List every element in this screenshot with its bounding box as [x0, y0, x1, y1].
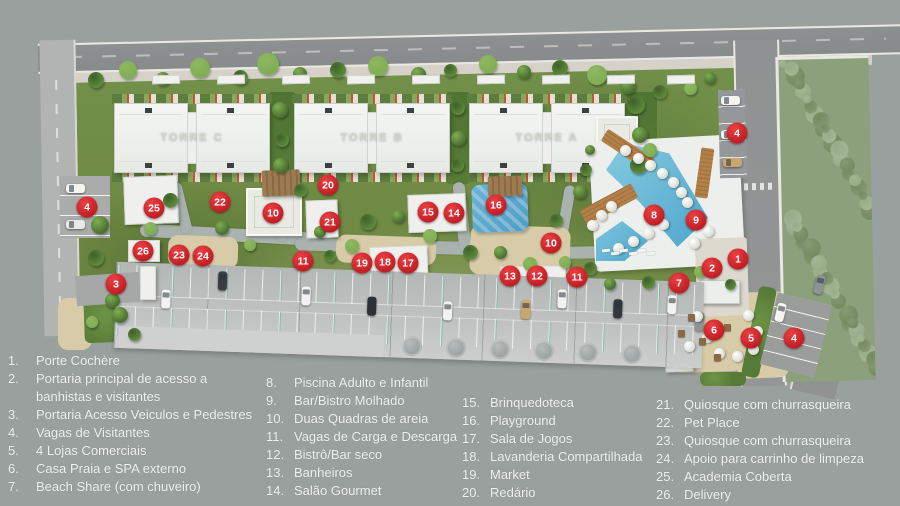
hedge-strip: [700, 372, 746, 386]
map-marker-7: 7: [669, 273, 690, 294]
legend-item: 9.Bar/Bistro Molhado: [266, 392, 476, 410]
tree: [642, 276, 655, 289]
map-marker-14: 14: [444, 203, 465, 224]
legend-item-number: 15.: [462, 394, 490, 412]
legend-item-number: 2.: [8, 370, 36, 406]
map-marker-11: 11: [567, 267, 588, 288]
tree: [112, 307, 128, 323]
legend-item-text: Lavanderia Compartilhada: [490, 448, 662, 466]
map-marker-8: 8: [644, 205, 665, 226]
tree: [643, 143, 657, 157]
legend-item-number: 10.: [266, 410, 294, 428]
pool-umbrella: [668, 177, 679, 188]
car: [521, 300, 531, 319]
legend-item-text: Market: [490, 466, 662, 484]
legend-item: 20.Redário: [462, 484, 662, 502]
legend-item-text: Porte Cochère: [36, 352, 266, 370]
legend-item-text: Quiosque com churrasqueira: [684, 432, 896, 450]
legend-item-number: 13.: [266, 464, 294, 482]
legend-item-text: Playground: [490, 412, 662, 430]
tree: [580, 164, 592, 176]
pool-umbrella: [620, 145, 631, 156]
map-marker-10: 10: [263, 203, 284, 224]
pool-umbrella: [684, 341, 695, 352]
tree: [275, 133, 289, 147]
map-marker-11: 11: [293, 251, 314, 272]
planter-box: [217, 75, 245, 85]
legend-item-text: 4 Lojas Comerciais: [36, 442, 266, 460]
tree: [423, 229, 437, 243]
car: [721, 96, 740, 105]
legend-item-text: Vagas de Carga e Descarga: [294, 428, 476, 446]
tree: [704, 72, 716, 84]
legend-item-text: Casa Praia e SPA externo: [36, 460, 266, 478]
legend-item-text: Salão Gourmet: [294, 482, 476, 500]
tree: [119, 61, 137, 79]
legend-item-number: 12.: [266, 446, 294, 464]
tree: [451, 101, 465, 115]
map-marker-18: 18: [375, 252, 396, 273]
legend-item-number: 7.: [8, 478, 36, 496]
tree: [163, 193, 178, 208]
legend-item-number: 14.: [266, 482, 294, 500]
legend-item-number: 19.: [462, 466, 490, 484]
pool-umbrella: [689, 238, 700, 249]
legend-item-number: 9.: [266, 392, 294, 410]
planter-box: [607, 75, 635, 85]
map-marker-19: 19: [352, 253, 373, 274]
legend-item-text: Brinquedoteca: [490, 394, 662, 412]
terrace-table: [699, 338, 706, 345]
tree: [105, 293, 120, 308]
legend-item-text: Piscina Adulto e Infantil: [294, 374, 476, 392]
map-marker-13: 13: [500, 266, 521, 287]
tower-label: TORRE C: [112, 132, 272, 144]
legend-item-text: Duas Quadras de areia: [294, 410, 476, 428]
tree: [585, 145, 595, 155]
legend-item: 26.Delivery: [656, 486, 896, 504]
car: [66, 220, 85, 229]
tree: [463, 245, 478, 260]
legend-item: 23.Quiosque com churrasqueira: [656, 432, 896, 450]
legend-item-number: 6.: [8, 460, 36, 478]
tree: [128, 328, 141, 341]
car: [161, 289, 171, 308]
map-marker-15: 15: [418, 202, 439, 223]
car: [667, 295, 677, 314]
legend-item: 17.Sala de Jogos: [462, 430, 662, 448]
pool-umbrella: [682, 197, 693, 208]
tree: [632, 127, 648, 143]
legend-item-text: Beach Share (com chuveiro): [36, 478, 266, 496]
map-marker-24: 24: [193, 246, 214, 267]
gatehouse: [140, 266, 156, 300]
car: [301, 286, 311, 305]
legend-item-number: 20.: [462, 484, 490, 502]
legend-item-text: Redário: [490, 484, 662, 502]
pool-umbrella: [703, 226, 714, 237]
pool-umbrella: [596, 210, 607, 221]
tree: [330, 62, 346, 78]
legend-item-number: 4.: [8, 424, 36, 442]
legend-item-number: 5.: [8, 442, 36, 460]
legend-item: 25.Academia Coberta: [656, 468, 896, 486]
tree: [86, 316, 98, 328]
legend-item: 3.Portaria Acesso Veiculos e Pedestres: [8, 406, 266, 424]
legend-item-text: Bistrô/Bar seco: [294, 446, 476, 464]
legend-item-number: 18.: [462, 448, 490, 466]
tree: [550, 214, 563, 227]
legend-item-number: 25.: [656, 468, 684, 486]
car: [613, 299, 623, 318]
map-marker-2: 2: [702, 258, 723, 279]
map-marker-4: 4: [784, 328, 805, 349]
planter-box: [667, 75, 695, 85]
legend-column-3: 15.Brinquedoteca16.Playground17.Sala de …: [462, 394, 662, 502]
legend-item-number: 11.: [266, 428, 294, 446]
map-marker-1: 1: [728, 249, 749, 270]
legend-item-text: Vagas de Visitantes: [36, 424, 266, 442]
planter-box: [282, 75, 310, 85]
tree: [451, 131, 466, 146]
storage-tank: [621, 343, 642, 364]
site-plan-slide: TORRE C TORRE B TORRE A: [0, 0, 900, 506]
legend-item-text: Apoio para carrinho de limpeza: [684, 450, 896, 468]
tree: [324, 250, 336, 262]
terrace-table: [678, 330, 685, 337]
pool-umbrella: [645, 160, 656, 171]
map-marker-20: 20: [318, 175, 339, 196]
car: [367, 297, 377, 316]
map-marker-21: 21: [320, 212, 341, 233]
legend-item: 14.Salão Gourmet: [266, 482, 476, 500]
map-marker-10: 10: [541, 233, 562, 254]
tree: [257, 53, 279, 75]
planter-box: [412, 75, 440, 85]
legend-item: 8.Piscina Adulto e Infantil: [266, 374, 476, 392]
map-marker-26: 26: [133, 241, 154, 262]
legend-item: 10.Duas Quadras de areia: [266, 410, 476, 428]
legend-item: 13.Banheiros: [266, 464, 476, 482]
legend-item-number: 22.: [656, 414, 684, 432]
map-marker-25: 25: [144, 198, 165, 219]
tree: [360, 214, 376, 230]
car: [443, 301, 453, 320]
pool-umbrella: [643, 228, 654, 239]
car: [66, 184, 85, 193]
tree: [604, 278, 616, 290]
crosswalk: [744, 183, 774, 191]
tree: [91, 216, 109, 234]
planter-box: [152, 75, 180, 85]
legend-column-4: 21.Quiosque com churrasqueira22.Pet Plac…: [656, 396, 896, 504]
legend-item: 16.Playground: [462, 412, 662, 430]
forest-tree: [866, 351, 876, 368]
storage-tank: [446, 337, 467, 358]
planter-box: [477, 75, 505, 85]
pool-umbrella: [587, 220, 598, 231]
legend-item-text: Bar/Bistro Molhado: [294, 392, 476, 410]
map-marker-23: 23: [169, 245, 190, 266]
tree: [88, 72, 104, 88]
legend-item-text: Sala de Jogos: [490, 430, 662, 448]
legend-column-2: 8.Piscina Adulto e Infantil9.Bar/Bistro …: [266, 374, 476, 500]
storage-tank: [577, 342, 598, 363]
legend-item: 21.Quiosque com churrasqueira: [656, 396, 896, 414]
tree: [444, 64, 457, 77]
planter-box: [542, 75, 570, 85]
tree: [88, 250, 104, 266]
tree: [273, 158, 288, 173]
map-marker-9: 9: [686, 210, 707, 231]
tree: [272, 102, 288, 118]
legend-item: 5.4 Lojas Comerciais: [8, 442, 266, 460]
map-marker-22: 22: [210, 192, 231, 213]
pool-umbrella: [657, 168, 668, 179]
legend-item: 24.Apoio para carrinho de limpeza: [656, 450, 896, 468]
map-marker-12: 12: [527, 266, 548, 287]
tree: [494, 246, 507, 259]
car: [557, 289, 567, 308]
tree: [627, 96, 645, 114]
terrace-table: [714, 354, 721, 361]
legend-item: 22.Pet Place: [656, 414, 896, 432]
pool-umbrella: [628, 236, 639, 247]
map-marker-17: 17: [398, 253, 419, 274]
legend-item-number: 8.: [266, 374, 294, 392]
legend-item-number: 26.: [656, 486, 684, 504]
legend-item-text: Pet Place: [684, 414, 896, 432]
terrace-table: [724, 324, 731, 331]
legend-item-text: Quiosque com churrasqueira: [684, 396, 896, 414]
tree: [215, 221, 229, 235]
pool-umbrella: [743, 310, 754, 321]
tower-b: TORRE B: [292, 94, 452, 182]
pool-umbrella: [732, 351, 743, 362]
legend-item-number: 17.: [462, 430, 490, 448]
legend-item-number: 1.: [8, 352, 36, 370]
tree: [451, 159, 464, 172]
pergola: [488, 175, 523, 196]
tree: [552, 60, 568, 76]
legend-item-text: Portaria principal de acesso a banhistas…: [36, 370, 266, 406]
map-marker-3: 3: [106, 274, 127, 295]
legend-item-text: Academia Coberta: [684, 468, 896, 486]
legend-item: 18.Lavanderia Compartilhada: [462, 448, 662, 466]
legend-item-text: Banheiros: [294, 464, 476, 482]
tree: [144, 222, 157, 235]
map-marker-6: 6: [704, 320, 725, 341]
tower-c: TORRE C: [112, 94, 272, 182]
map-marker-4: 4: [77, 197, 98, 218]
tree: [653, 85, 667, 99]
storage-tank: [533, 340, 554, 361]
pool-umbrella: [633, 153, 644, 164]
tree: [345, 239, 359, 253]
legend-item: 4.Vagas de Visitantes: [8, 424, 266, 442]
legend-item: 11.Vagas de Carga e Descarga: [266, 428, 476, 446]
car: [218, 271, 228, 290]
tree: [725, 279, 736, 290]
legend-item-text: Portaria Acesso Veiculos e Pedestres: [36, 406, 266, 424]
legend-item: 6.Casa Praia e SPA externo: [8, 460, 266, 478]
car: [723, 158, 742, 167]
legend-item-text: Delivery: [684, 486, 896, 504]
map-marker-16: 16: [486, 195, 507, 216]
storage-tank: [402, 336, 423, 357]
tree: [294, 184, 307, 197]
legend-column-1: 1.Porte Cochère2.Portaria principal de a…: [8, 352, 266, 496]
terrace-table: [688, 314, 695, 321]
legend-item-number: 23.: [656, 432, 684, 450]
legend-item: 7.Beach Share (com chuveiro): [8, 478, 266, 496]
legend-item-number: 16.: [462, 412, 490, 430]
tree: [587, 65, 607, 85]
tree: [517, 65, 531, 79]
tower-label: TORRE B: [292, 132, 452, 144]
tree: [190, 58, 210, 78]
storage-tank: [490, 339, 511, 360]
legend-item-number: 3.: [8, 406, 36, 424]
legend-item: 2.Portaria principal de acesso a banhist…: [8, 370, 266, 406]
tree: [368, 56, 388, 76]
tree: [392, 210, 405, 223]
legend-item-number: 21.: [656, 396, 684, 414]
tree: [479, 55, 497, 73]
pool-umbrella: [606, 201, 617, 212]
legend-item: 15.Brinquedoteca: [462, 394, 662, 412]
tree: [559, 256, 571, 268]
legend-item: 1.Porte Cochère: [8, 352, 266, 370]
map-marker-4: 4: [727, 123, 748, 144]
legend-item: 12.Bistrô/Bar seco: [266, 446, 476, 464]
legend-item: 19.Market: [462, 466, 662, 484]
legend-item-number: 24.: [656, 450, 684, 468]
tree: [573, 185, 587, 199]
tree: [244, 239, 256, 251]
map-marker-5: 5: [741, 328, 762, 349]
balcony-strip: [292, 172, 452, 182]
planter-box: [347, 75, 375, 85]
